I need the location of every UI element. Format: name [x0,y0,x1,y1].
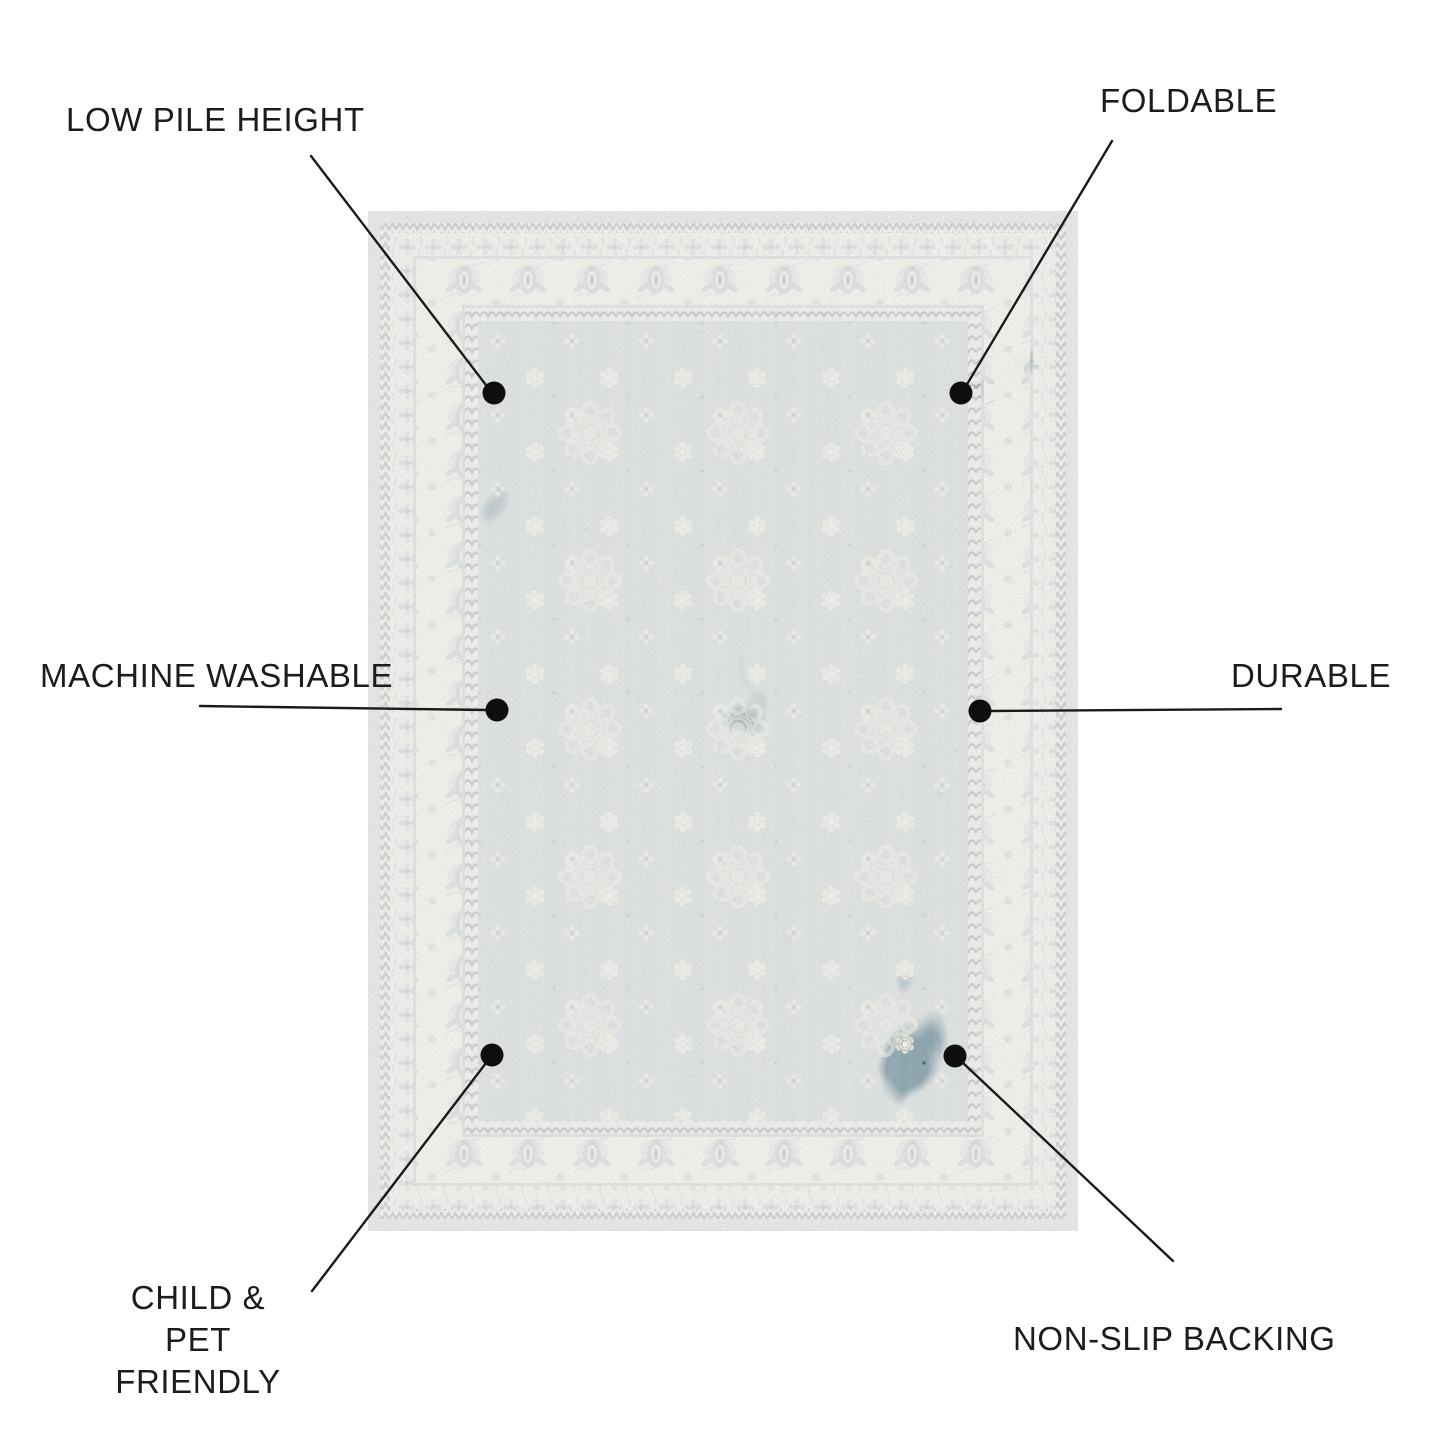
feature-label-line-2: PET FRIENDLY [115,1321,281,1400]
feature-label-machine-washable: MACHINE WASHABLE [40,655,393,697]
rug-image [368,211,1078,1231]
product-infographic: LOW PILE HEIGHT FOLDABLE MACHINE WASHABL… [0,0,1445,1445]
feature-label-durable: DURABLE [1231,655,1391,697]
feature-label-low-pile-height: LOW PILE HEIGHT [66,99,365,141]
feature-label-line-1: CHILD & [131,1279,265,1316]
feature-label-child-pet-friendly: CHILD & PET FRIENDLY [88,1277,308,1404]
feature-label-non-slip-backing: NON-SLIP BACKING [1013,1318,1336,1360]
feature-label-foldable: FOLDABLE [1100,80,1277,122]
